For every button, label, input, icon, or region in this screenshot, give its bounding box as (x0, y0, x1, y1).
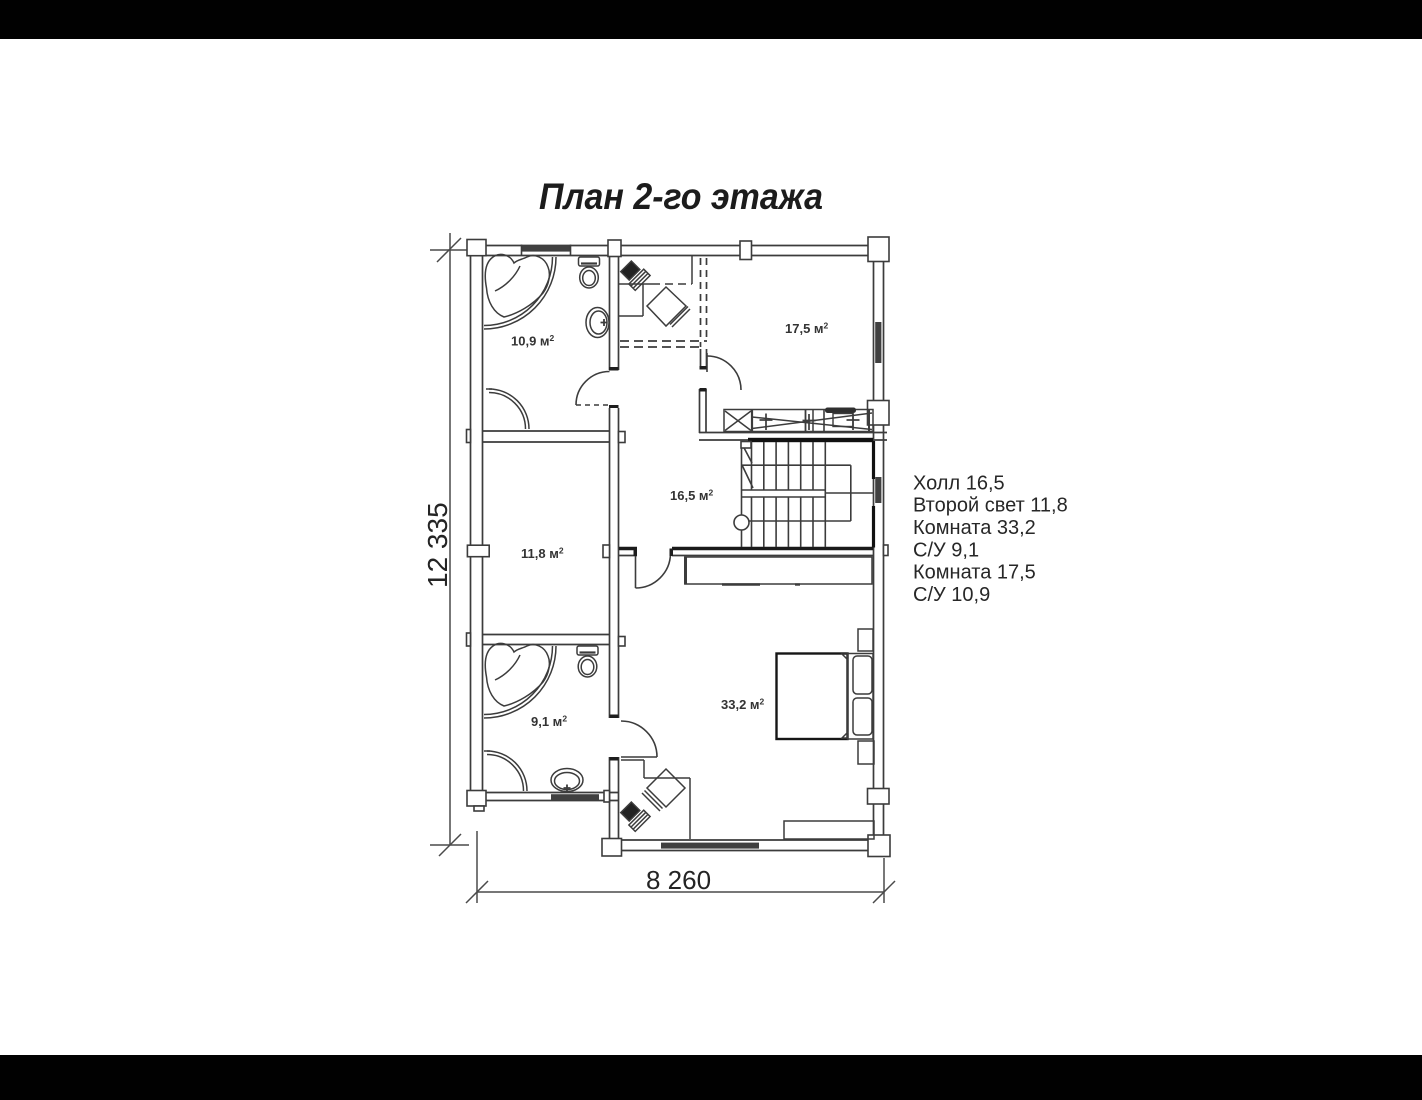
svg-text:8 260: 8 260 (646, 865, 711, 895)
svg-text:Холл 16,5: Холл 16,5 (913, 472, 1005, 494)
svg-text:9,1 м2: 9,1 м2 (531, 714, 567, 730)
svg-text:С/У 10,9: С/У 10,9 (913, 584, 990, 606)
svg-text:16,5 м2: 16,5 м2 (670, 488, 714, 504)
svg-text:План 2-го этажа: План 2-го этажа (539, 176, 823, 217)
svg-text:Комната 33,2: Комната 33,2 (913, 517, 1036, 539)
svg-text:С/У 9,1: С/У 9,1 (913, 539, 979, 561)
svg-text:17,5 м2: 17,5 м2 (785, 321, 829, 337)
svg-text:Второй свет 11,8: Второй свет 11,8 (913, 495, 1068, 517)
svg-text:11,8 м2: 11,8 м2 (521, 546, 564, 562)
svg-text:Комната 17,5: Комната 17,5 (913, 562, 1036, 584)
svg-text:10,9 м2: 10,9 м2 (511, 333, 555, 349)
svg-text:12 335: 12 335 (422, 502, 453, 588)
svg-text:33,2 м2: 33,2 м2 (721, 697, 765, 713)
